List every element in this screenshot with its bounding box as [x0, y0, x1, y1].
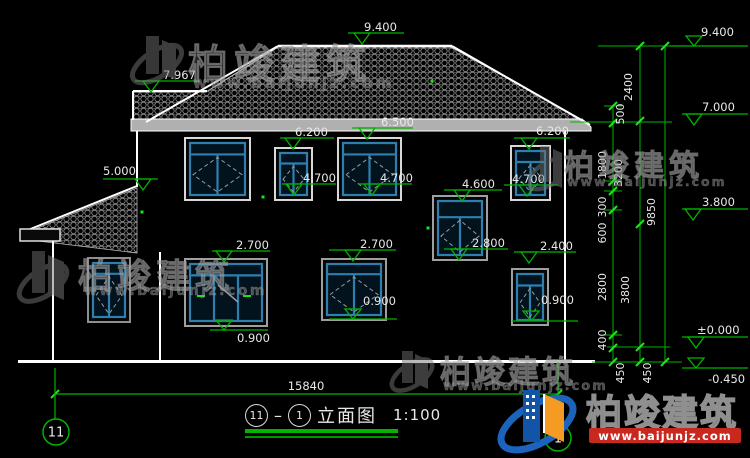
window	[433, 196, 487, 260]
cad-elevation-drawing: 9.4007.9675.0006.5006.2006.2004.7004.700…	[0, 0, 750, 458]
elevation-triangle-icon	[688, 337, 704, 348]
brand-url: www.baijunjz.com	[598, 429, 731, 443]
chain-dim-value: 450	[641, 363, 654, 384]
watermark-logo-icon	[126, 28, 188, 90]
watermark-url: www.baijunjz.com	[84, 283, 267, 299]
chain-dim-value: 300	[596, 197, 609, 218]
dimension-chain: 9850	[645, 42, 669, 366]
chain-dim-value: 3800	[619, 276, 632, 304]
title-axis-left-bubble: 11	[245, 404, 268, 427]
elevation-value: 2.800	[472, 236, 505, 250]
chain-dim-value: 9850	[645, 198, 658, 226]
title-separator: –	[274, 406, 282, 425]
elevation-value: 2.700	[360, 237, 393, 251]
chain-dim-value: 2400	[622, 73, 635, 101]
window	[322, 259, 386, 320]
elevation-marker: 2.400	[514, 239, 576, 263]
elevation-marker: 5.000	[103, 164, 158, 190]
elevation-triangle-icon	[686, 36, 702, 46]
osnap-dot	[141, 211, 144, 214]
watermark-url: www.baijunjz.com	[567, 174, 727, 189]
elevation-marker: 7.000	[682, 100, 748, 125]
osnap-dot	[431, 80, 434, 83]
elevation-marker: 9.400	[348, 20, 404, 44]
brand-url-bar: www.baijunjz.com	[589, 428, 741, 443]
osnap-dot	[427, 227, 430, 230]
watermark-logo-icon	[528, 140, 562, 198]
elevation-value: 4.600	[462, 177, 495, 191]
dimension-chain: 50018003006002800400450	[596, 102, 627, 384]
elevation-marker: 2.700	[329, 237, 396, 261]
elevation-marker: 3.800	[682, 195, 748, 220]
elevation-value: 0.900	[541, 293, 574, 307]
brand-logo-icon	[490, 382, 586, 456]
window	[185, 138, 250, 200]
title-axis-right-bubble: 1	[288, 404, 311, 427]
chain-dim-value: 400	[596, 330, 609, 351]
brand-logo: 柏竣建筑 www.baijunjz.com	[490, 382, 748, 456]
drawing-title: 11 – 1 立面图 1:100	[245, 402, 441, 428]
elevation-value: 4.700	[303, 171, 336, 185]
wing-fascia	[20, 229, 60, 241]
elevation-triangle-icon	[354, 33, 370, 44]
chain-dim-value: 600	[596, 223, 609, 244]
elevation-value: 4.700	[380, 171, 413, 185]
elevation-value: 0.900	[237, 331, 270, 345]
osnap-dot	[262, 196, 265, 199]
elevation-value: 9.400	[364, 20, 397, 34]
elevation-triangle-icon	[521, 252, 537, 263]
elevation-value: 6.200	[295, 125, 328, 139]
watermark-logo-icon	[14, 243, 72, 311]
elevation-value: 3.800	[702, 195, 735, 209]
title-name: 立面图	[317, 402, 377, 428]
elevation-value: 2.400	[540, 239, 573, 253]
elevation-value: 6.200	[536, 124, 569, 138]
elevation-value: 9.400	[701, 25, 734, 39]
title-underline	[245, 429, 398, 433]
elevation-marker: 9.400	[670, 25, 748, 46]
axis-number: 11	[48, 426, 65, 441]
elevation-value: 2.700	[236, 238, 269, 252]
chain-dim-value: 2800	[596, 273, 609, 301]
elevation-value: 5.000	[103, 164, 136, 178]
elevation-marker: ±0.000	[682, 323, 748, 348]
title-scale: 1:100	[393, 406, 441, 424]
elevation-triangle-icon	[685, 209, 701, 220]
elevation-triangle-icon	[686, 114, 702, 125]
elevation-value: ±0.000	[697, 323, 740, 337]
title-underline	[245, 436, 398, 438]
eave-band	[131, 119, 591, 131]
chain-dim-value: 500	[614, 104, 627, 125]
elevation-value: 7.000	[702, 100, 735, 114]
axis-bubble: 11	[43, 368, 69, 445]
elevation-triangle-icon	[688, 358, 704, 368]
chain-dim-value: 450	[614, 363, 627, 384]
elevation-value: 6.500	[381, 115, 414, 129]
elevation-value: 0.900	[363, 294, 396, 308]
watermark-logo-icon	[386, 345, 438, 397]
total-width-value: 15840	[288, 379, 325, 393]
watermark-url: www.baijunjz.com	[193, 74, 394, 92]
